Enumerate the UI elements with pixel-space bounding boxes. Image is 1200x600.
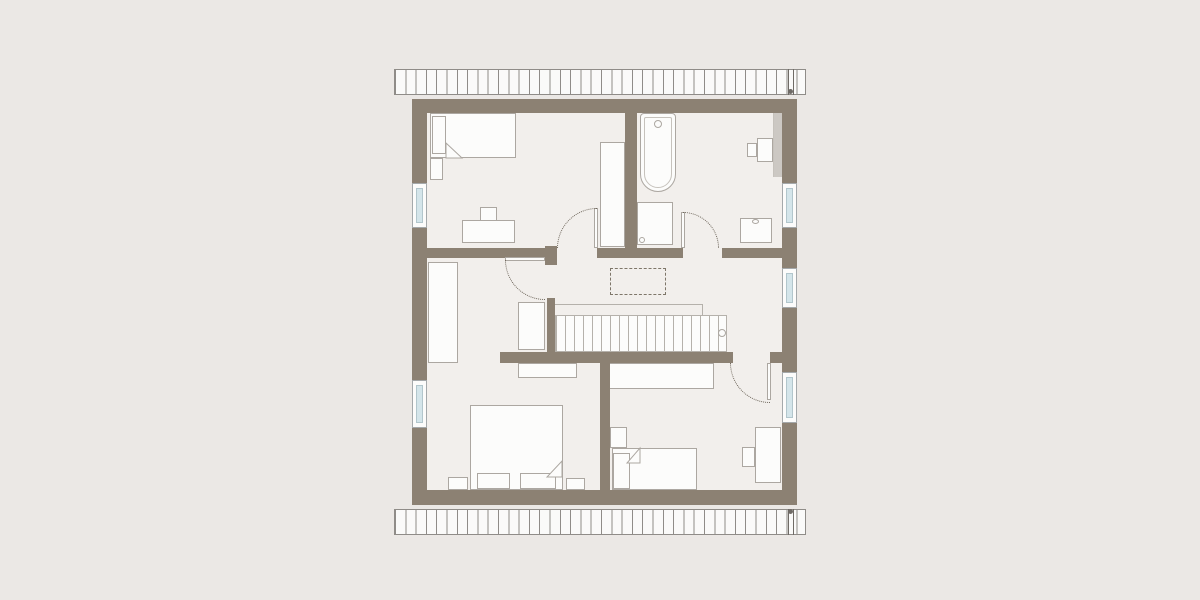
master-nightstand-left	[448, 477, 468, 490]
master-bed-blanket-fold	[547, 461, 562, 477]
bathroom-wall-shelf-strip	[773, 105, 782, 177]
child1-wardrobe	[600, 142, 625, 247]
bathroom-partition-wall	[625, 113, 637, 258]
window-right-middle	[782, 268, 797, 308]
window-left-lower-glass	[416, 385, 423, 423]
window-right-middle-glass	[786, 273, 793, 303]
roof-gutter-line-top-2	[793, 69, 794, 95]
window-right-upper	[782, 183, 797, 228]
staircase	[555, 315, 727, 352]
washbasin-tap	[752, 219, 759, 224]
roof-overhang-bottom	[394, 509, 806, 535]
child2-sideboard	[608, 363, 714, 389]
master-door-wall	[547, 298, 555, 352]
child1-bed-pillow	[432, 116, 446, 154]
child2-bed-blanket-fold	[627, 448, 640, 463]
master-dresser	[518, 363, 577, 378]
child1-desk	[462, 220, 515, 243]
bathtub-drain	[654, 120, 662, 128]
bathtub	[640, 113, 676, 192]
window-right-lower	[782, 372, 797, 423]
roof-overhang-top	[394, 69, 806, 95]
window-right-upper-glass	[786, 188, 793, 223]
upper-corridor-wall-b	[597, 248, 683, 258]
master-nightstand-right	[566, 478, 585, 490]
window-right-lower-glass	[786, 377, 793, 418]
floor-plan	[0, 0, 1200, 600]
shower-drain	[639, 237, 645, 243]
stair-railing	[548, 304, 703, 316]
exterior-wall-bottom	[412, 490, 797, 505]
roof-gutter-line-bottom-2	[793, 509, 794, 535]
roof-gutter-dot-top	[788, 89, 793, 94]
window-left-upper-glass	[416, 188, 423, 223]
child2-bed-headboard	[610, 427, 627, 448]
window-left-lower	[412, 380, 427, 428]
hall-lower-wall-stub	[770, 352, 782, 363]
stair-newel-circle	[718, 329, 726, 337]
bath-vanity	[757, 138, 773, 162]
hall-lower-wall	[500, 352, 733, 363]
exterior-wall-top	[412, 99, 797, 113]
hall-wardrobe	[518, 302, 545, 350]
bottom-rooms-divider-wall	[600, 363, 610, 490]
roof-gutter-dot-bottom	[788, 509, 793, 514]
master-wardrobe-left	[428, 262, 458, 363]
door-jamb-block	[545, 246, 557, 265]
child1-desk-chair	[480, 207, 497, 221]
child1-bed-headboard	[430, 158, 443, 180]
bath-stool	[747, 143, 757, 157]
child2-desk	[755, 427, 781, 483]
window-left-upper	[412, 183, 427, 228]
child1-bed-blanket-fold	[446, 143, 462, 158]
upper-corridor-wall-c	[722, 248, 782, 258]
ceiling-opening-dashed	[610, 268, 666, 295]
master-bed-pillow-left	[477, 473, 510, 489]
child2-desk-chair	[742, 447, 755, 467]
exterior-wall-left	[412, 99, 427, 505]
